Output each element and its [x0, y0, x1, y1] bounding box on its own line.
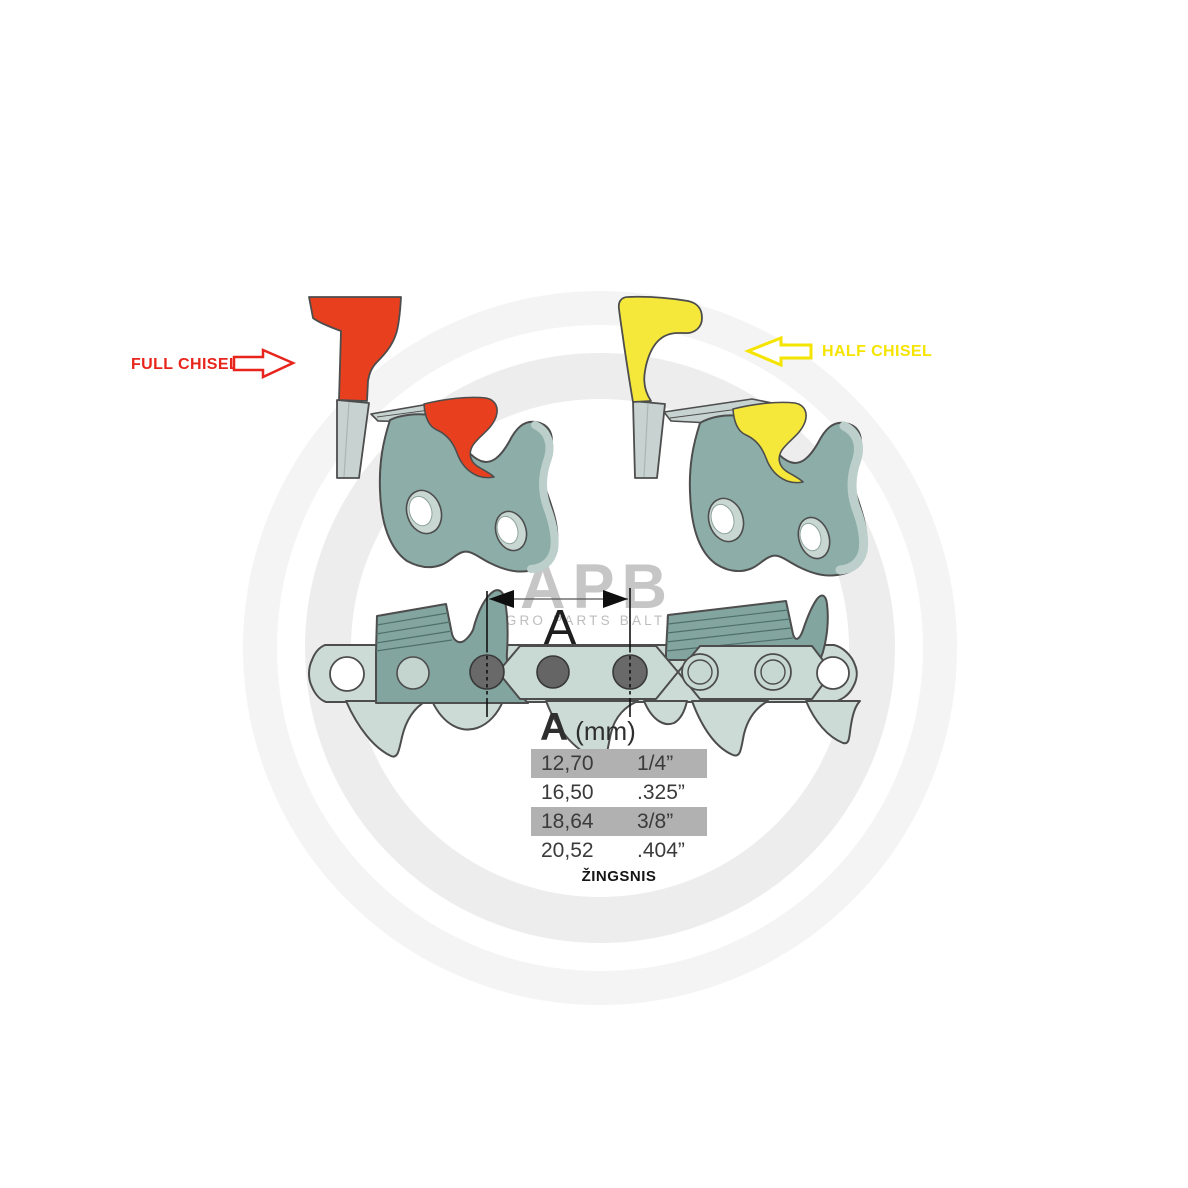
- pitch-mm-value: 16,50: [531, 781, 637, 805]
- pitch-table-row: 16,50 .325”: [531, 778, 707, 807]
- watermark-subtitle: AGRO PARTS BALTIJA: [494, 613, 695, 628]
- half-chisel-label: HALF CHISEL: [822, 343, 932, 360]
- pitch-table-row: 20,52 .404”: [531, 836, 707, 865]
- pitch-caption: ŽINGSNIS: [531, 868, 707, 885]
- pitch-header-letter: A: [540, 706, 568, 750]
- pitch-table: 12,70 1/4” 16,50 .325” 18,64 3/8” 20,52 …: [531, 749, 707, 865]
- chain-rivet-2: [537, 656, 569, 688]
- chain-end-hole-right: [817, 657, 849, 689]
- full-chisel-side-plate-bar: [337, 400, 369, 478]
- pitch-mm-value: 18,64: [531, 810, 637, 834]
- pitch-table-header: A (mm): [540, 706, 636, 750]
- chain-tooth-3: [692, 701, 768, 756]
- pitch-inch-value: .325”: [637, 781, 707, 805]
- half-chisel-side-plate-bar: [633, 401, 665, 478]
- chain-end-hole-left: [330, 657, 364, 691]
- diagram-canvas: APB AGRO PARTS BALTIJA: [0, 0, 1188, 1188]
- chainsaw-chain-diagram: APB AGRO PARTS BALTIJA: [0, 0, 1188, 1188]
- pitch-inch-value: 3/8”: [637, 810, 707, 834]
- pitch-inch-value: 1/4”: [637, 752, 707, 776]
- pitch-table-row: 12,70 1/4”: [531, 749, 707, 778]
- pitch-table-row: 18,64 3/8”: [531, 807, 707, 836]
- chain-ringed-hole-1: [682, 654, 718, 690]
- chain-left-cutter-hole: [397, 657, 429, 689]
- pitch-mm-value: 20,52: [531, 839, 637, 863]
- full-chisel-arrow-icon: [234, 350, 293, 377]
- pitch-mm-value: 12,70: [531, 752, 637, 776]
- chain-bumper-2: [644, 701, 687, 724]
- pitch-inch-value: .404”: [637, 839, 707, 863]
- chain-center-tie-strap: [498, 646, 678, 699]
- pitch-header-unit: (mm): [575, 716, 636, 747]
- dimension-letter-label: A: [544, 601, 577, 655]
- full-chisel-label: FULL CHISEL: [131, 356, 239, 373]
- chain-left-cutter: [376, 590, 528, 703]
- chain-ringed-hole-2: [755, 654, 791, 690]
- chain-bumper-1: [432, 701, 503, 730]
